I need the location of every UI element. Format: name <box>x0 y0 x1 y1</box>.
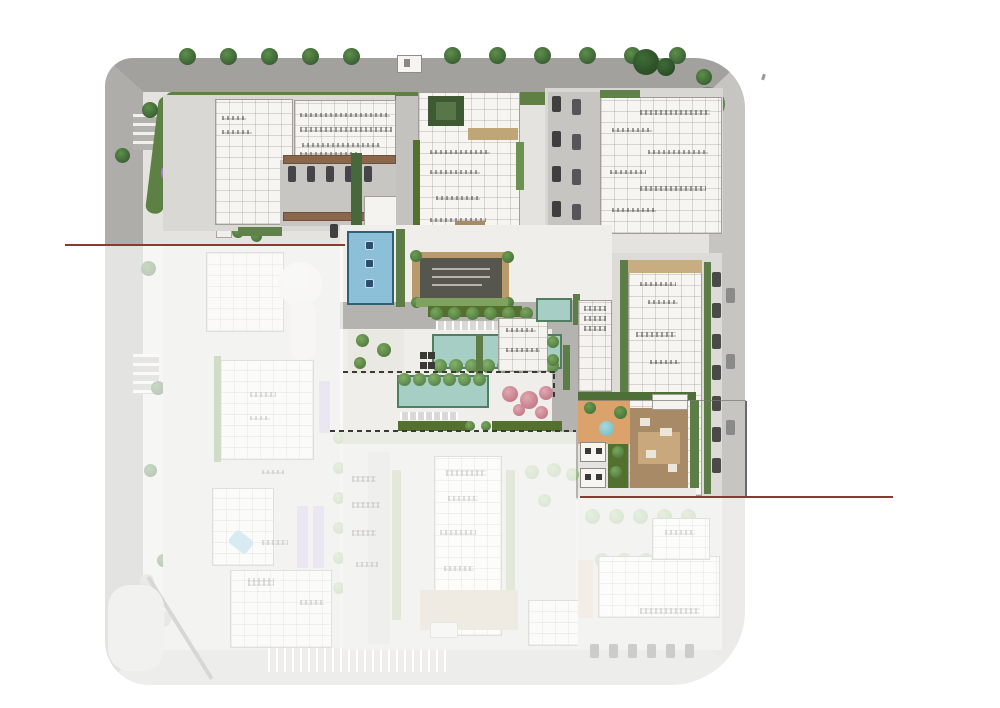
plan-annotation <box>436 196 480 200</box>
parked-car <box>552 131 561 147</box>
parked-car <box>712 396 721 411</box>
phase-boundary-dash-bottom <box>330 430 576 432</box>
plan-annotation <box>506 348 540 352</box>
clubhouse <box>420 258 502 299</box>
plan-annotation <box>640 186 706 191</box>
deck-furniture <box>646 450 656 458</box>
phase-boundary-edge-horizontal <box>578 400 746 401</box>
street-tree <box>261 48 278 65</box>
plan-annotation <box>584 316 606 321</box>
cabana <box>580 442 606 462</box>
parked-car <box>572 204 581 220</box>
plan-annotation <box>584 326 606 331</box>
parked-car <box>712 303 721 318</box>
site-plan <box>0 0 1000 708</box>
parked-car <box>326 166 334 182</box>
courtyard-tree <box>502 251 514 263</box>
stray-mark <box>761 74 766 81</box>
courtyard-tree <box>377 343 391 357</box>
parked-car <box>572 169 581 185</box>
hedge-vertical <box>476 336 483 374</box>
street-tree <box>142 102 158 118</box>
parked-car <box>572 134 581 150</box>
wood-deck-inner <box>638 432 680 464</box>
building-wing <box>578 300 612 392</box>
street-tree <box>343 48 360 65</box>
hedge-vertical <box>563 345 570 390</box>
plan-annotation <box>430 170 480 174</box>
street-tree <box>489 47 506 64</box>
hedge-vertical <box>351 153 362 233</box>
pool-edge-tree <box>428 373 441 386</box>
cabana <box>580 468 606 488</box>
site-plan-canvas <box>0 0 1000 708</box>
courtyard-tree <box>466 307 479 320</box>
hedge-vertical <box>704 262 711 494</box>
street-tree <box>220 48 237 65</box>
parked-car <box>712 334 721 349</box>
flower-bed <box>502 386 518 402</box>
deck-furniture <box>668 464 677 472</box>
parked-car <box>712 365 721 380</box>
street-tree <box>534 47 551 64</box>
spa-square <box>420 362 427 369</box>
plan-annotation <box>612 208 656 212</box>
plan-annotation <box>300 127 392 132</box>
cabana-mark <box>585 474 591 480</box>
tan-terrace <box>468 128 518 140</box>
street-tree <box>179 48 196 65</box>
plan-annotation <box>640 110 710 115</box>
clubhouse-skylight <box>432 284 482 286</box>
plan-annotation <box>610 170 646 174</box>
guard-house-glyph <box>404 59 410 67</box>
street-tree <box>696 69 712 85</box>
building <box>600 97 722 234</box>
courtyard-tree <box>430 307 443 320</box>
courtyard-tree <box>614 406 627 419</box>
street-tree <box>115 148 130 163</box>
courtyard-tree <box>484 307 497 320</box>
plan-annotation <box>430 150 490 154</box>
pool-edge-tree <box>458 373 471 386</box>
parked-car <box>288 166 296 182</box>
spa-pool <box>536 298 572 322</box>
pool-edge-tree <box>413 373 426 386</box>
plan-annotation <box>650 360 680 364</box>
street-tree <box>579 47 596 64</box>
roof-courtyard-lawn <box>436 102 456 120</box>
parked-car <box>364 166 372 182</box>
spa-square <box>420 352 427 359</box>
parked-car <box>726 354 735 369</box>
phase-boundary-dash-top <box>343 371 555 373</box>
pool-float <box>365 259 374 268</box>
parked-car <box>572 99 581 115</box>
phase-boundary-dash-vertical <box>553 371 555 397</box>
annotation-line-right <box>580 496 893 498</box>
hedge-vertical <box>516 142 524 190</box>
parked-car <box>307 166 315 182</box>
plan-annotation <box>636 332 676 337</box>
hedge-vertical <box>396 229 405 307</box>
courtyard-tree <box>612 446 624 458</box>
parked-car <box>552 201 561 217</box>
pool-edge-tree <box>443 373 456 386</box>
plan-annotation <box>222 116 246 120</box>
plan-annotation <box>506 328 536 332</box>
spa-square <box>428 352 435 359</box>
building-wing <box>498 318 548 372</box>
flower-bed <box>539 386 553 400</box>
hedge <box>238 227 282 236</box>
courtyard-tree <box>410 250 422 262</box>
clubhouse-skylight <box>432 276 490 278</box>
parked-car <box>712 272 721 287</box>
parked-car <box>552 166 561 182</box>
plan-annotation <box>612 128 652 132</box>
flower-bed <box>513 404 525 416</box>
plan-annotation <box>648 150 708 154</box>
deck-pavilion <box>652 394 688 410</box>
courtyard-tree <box>354 357 366 369</box>
plan-annotation <box>300 113 390 117</box>
clubhouse-skylight <box>432 268 490 270</box>
plan-annotation <box>584 306 606 311</box>
deck-furniture <box>660 428 672 436</box>
fade-overlay-west <box>58 246 343 690</box>
courtyard-tree <box>547 354 559 366</box>
tan-terrace <box>628 260 702 273</box>
courtyard-tree <box>584 402 596 414</box>
plan-annotation <box>648 300 678 304</box>
cabana-mark <box>585 448 591 454</box>
courtyard-tree <box>356 334 369 347</box>
playground-structure <box>599 421 614 436</box>
hedge <box>600 90 640 98</box>
plan-annotation <box>640 282 676 286</box>
courtyard-tree <box>610 466 622 478</box>
tree-cluster <box>633 49 659 75</box>
street-tree <box>444 47 461 64</box>
pool-edge-tree <box>473 373 486 386</box>
tree-cluster <box>657 58 675 76</box>
cabana-mark <box>596 474 602 480</box>
parked-car <box>330 224 338 238</box>
spa-square <box>428 362 435 369</box>
deck-furniture <box>640 418 650 426</box>
fade-overlay-east <box>576 498 960 690</box>
pool-float <box>365 241 374 250</box>
pool-edge-tree <box>398 373 411 386</box>
cabana-mark <box>596 448 602 454</box>
parked-car <box>726 420 735 435</box>
courtyard-tree <box>448 307 461 320</box>
hedge-vertical <box>690 400 699 488</box>
parked-car <box>712 427 721 442</box>
flower-bed <box>535 406 548 419</box>
lounger-row <box>400 412 458 420</box>
parked-car <box>552 96 561 112</box>
plan-annotation <box>302 143 380 147</box>
parked-car <box>712 458 721 473</box>
pool-float <box>365 279 374 288</box>
parked-car <box>726 288 735 303</box>
street-tree <box>302 48 319 65</box>
plan-annotation <box>222 130 252 134</box>
fade-overlay-center <box>343 432 576 690</box>
phase-boundary-edge-vertical <box>745 401 747 498</box>
carport-pergola <box>283 155 396 164</box>
annotation-line-left <box>65 244 345 246</box>
courtyard-tree <box>547 336 559 348</box>
